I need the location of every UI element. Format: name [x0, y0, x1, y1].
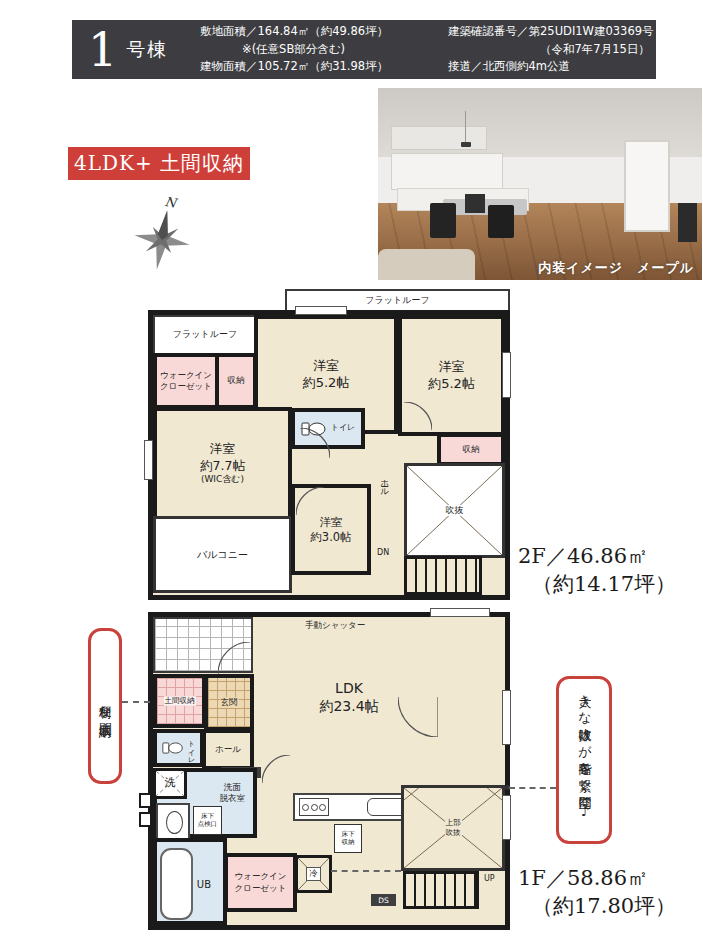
stairs-2f: [404, 556, 482, 595]
floor-plan-1f: 手動シャッター 土間収納 玄関 トイレ ホール 玄関収納 洗面 脱衣室: [148, 612, 510, 930]
unit-number: 1: [88, 27, 117, 73]
bedroom-7-7-label: 洋室 約7.7帖: [200, 441, 245, 474]
compass-icon: N: [124, 190, 200, 278]
header-confirmation: 建築確認番号／第25UDI1W建03369号 （令和7年7月15日） 接道／北西…: [448, 23, 654, 76]
window-1f-top: [430, 608, 490, 617]
window-2f-left: [144, 440, 153, 480]
void-upper-1f: 上部 吹抜: [401, 785, 505, 871]
photo-upper-cabinets: [391, 126, 487, 149]
balcony: バルコニー: [153, 516, 292, 593]
door-arc-entrance: [218, 642, 250, 674]
flat-roof-top-label: フラットルーフ: [365, 295, 429, 307]
bedroom-5-2-left-label: 洋室 約5.2帖: [303, 358, 350, 392]
walk-in-closet-1f: ウォークイン クローゼット: [224, 853, 297, 912]
stairs-dn-label: DN: [377, 548, 389, 558]
meter-box: [139, 793, 152, 808]
underfloor-storage-label: 床下 収納: [334, 824, 362, 853]
callout-void-connector: [509, 787, 556, 789]
header-areas: 敷地面積／164.84㎡（約49.86坪） ※(任意SB部分含む) 建物面積／1…: [200, 23, 438, 76]
stove: [299, 798, 329, 816]
photo-sofa: [378, 249, 475, 280]
stove-burner: [311, 804, 318, 811]
confirmation-number: 建築確認番号／第25UDI1W建03369号: [448, 23, 654, 41]
site-area-note: ※(任意SB部分含む): [200, 41, 438, 59]
door-arc-bedroom30: [296, 487, 324, 515]
sanitary-room: 洗面 脱衣室 洗 床下 点検口: [153, 768, 257, 838]
toilet-2f-label: トイレ: [331, 423, 356, 433]
area-1f-line1: 1F／58.86㎡: [518, 864, 676, 892]
doma-storage: 土間収納: [153, 674, 206, 728]
void-upper-label: 上部 吹抜: [445, 818, 462, 838]
window-2f-top: [295, 306, 347, 315]
vanity-basin: [166, 811, 183, 834]
ldk-label: LDK 約23.4帖: [303, 679, 395, 715]
void-2f-label: 吹抜: [445, 505, 465, 517]
stove-burner: [319, 804, 326, 811]
photo-pendant-light: [461, 142, 471, 147]
hall-1f: ホール: [202, 729, 254, 770]
flat-roof-left: フラットルーフ: [153, 315, 257, 355]
callout-void-text: 大きな吹抜けが各階を繋ぐ空間に♪: [576, 685, 593, 835]
photo-pendant-cord: [465, 111, 466, 146]
area-2f-line2: （約14.17坪）: [518, 570, 676, 598]
unit-suffix: 号棟: [126, 37, 168, 63]
unit-bath-label: UB: [197, 878, 211, 891]
sanitary-room-label: 洗面 脱衣室: [220, 782, 246, 804]
door-arc-sanitary: [262, 755, 290, 783]
fridge-space: 冷: [295, 855, 332, 893]
photo-kitchen-back: [391, 153, 503, 190]
bathtub: [160, 848, 193, 920]
bedroom-7-7-note: (WIC含む): [201, 474, 244, 486]
callout-void: 大きな吹抜けが各階を繋ぐ空間に♪: [556, 676, 612, 844]
stove-burner: [302, 804, 309, 811]
washer-space: 洗: [153, 768, 187, 799]
closet-2f-right-label: 収納: [463, 444, 480, 455]
site-area: 敷地面積／164.84㎡（約49.86坪）: [200, 23, 438, 41]
callout-doma-text: 便利な土間収納: [97, 695, 113, 716]
photo-tv: [678, 203, 697, 241]
area-2f: 2F／46.86㎡ （約14.17坪）: [518, 542, 676, 599]
kitchen-dashed-line: [331, 870, 401, 872]
hall-1f-label: ホール: [215, 744, 241, 755]
callout-doma-connector: [122, 701, 150, 703]
genkan: 玄関: [204, 674, 254, 731]
unit-bath: UB: [153, 838, 227, 925]
washer-label: 洗: [165, 776, 176, 790]
void-2f: 吹抜: [404, 463, 505, 558]
photo-chair-back: [465, 194, 484, 213]
stairs-1f: [403, 871, 479, 909]
flyer-page: 1 号棟 敷地面積／164.84㎡（約49.86坪） ※(任意SB部分含む) 建…: [0, 0, 703, 937]
unit-number-block: 1 号棟: [88, 27, 200, 73]
photo-chair-right: [488, 205, 514, 238]
photo-caption: 内装イメージ メープル: [538, 259, 694, 277]
toilet-1f: トイレ: [153, 729, 204, 767]
confirmation-date: （令和7年7月15日）: [448, 41, 654, 59]
meter-box: [139, 812, 152, 827]
closet-2f-right: 収納: [437, 433, 505, 466]
photo-door: [624, 140, 669, 232]
fridge-label: 冷: [306, 867, 321, 880]
hall-2f-label: ホール: [379, 473, 390, 492]
toilet-icon: [162, 741, 184, 755]
interior-photo: 内装イメージ メープル: [378, 88, 702, 280]
header-bar: 1 号棟 敷地面積／164.84㎡（約49.86坪） ※(任意SB部分含む) 建…: [72, 20, 656, 79]
walk-in-closet-2f: ウォークイン クローゼット: [153, 353, 219, 409]
road-access: 接道／北西側約4m公道: [448, 58, 654, 76]
door-arc-bedroom52r: [404, 402, 432, 430]
toilet-1f-label: トイレ: [186, 736, 195, 760]
callout-doma: 便利な土間収納: [88, 628, 122, 784]
closet-2f-left-label: 収納: [228, 375, 245, 386]
genkan-label: 玄関: [220, 697, 239, 708]
door-arc-bedroom52: [300, 428, 330, 458]
window-2f-right: [502, 352, 511, 398]
area-1f-line2: （約17.80坪）: [518, 892, 676, 920]
window-1f-void: [502, 795, 511, 840]
walk-in-closet-2f-label: ウォークイン クローゼット: [160, 370, 212, 392]
flat-roof-left-label: フラットルーフ: [173, 329, 237, 341]
walk-in-closet-1f-label: ウォークイン クローゼット: [235, 871, 287, 893]
bedroom-7-7: 洋室 約7.7帖 (WIC含む): [153, 407, 292, 520]
door-arc-ldk: [398, 697, 438, 737]
vanity-unit: [156, 803, 190, 840]
underfloor-hatch-label: 床下 点検口: [193, 806, 222, 835]
area-2f-line1: 2F／46.86㎡: [518, 542, 676, 570]
photo-chair-left: [430, 203, 456, 238]
shutter-label: 手動シャッター: [305, 620, 365, 631]
area-1f: 1F／58.86㎡ （約17.80坪）: [518, 864, 676, 921]
bedroom-3-0-label: 洋室 約3.0帖: [310, 515, 351, 545]
plan-type-badge: 4LDK+ 土間収納: [68, 147, 250, 180]
doma-storage-label: 土間収納: [164, 696, 196, 706]
bedroom-5-2-right-label: 洋室 約5.2帖: [428, 359, 475, 393]
svg-text:N: N: [163, 194, 179, 211]
ds-tag: DS: [371, 894, 396, 906]
balcony-label: バルコニー: [197, 548, 248, 561]
stairs-up-label: UP: [484, 874, 495, 884]
closet-2f-left: 収納: [215, 353, 257, 409]
building-area: 建物面積／105.72㎡（約31.98坪）: [200, 58, 438, 76]
window-1f-right: [502, 690, 511, 745]
